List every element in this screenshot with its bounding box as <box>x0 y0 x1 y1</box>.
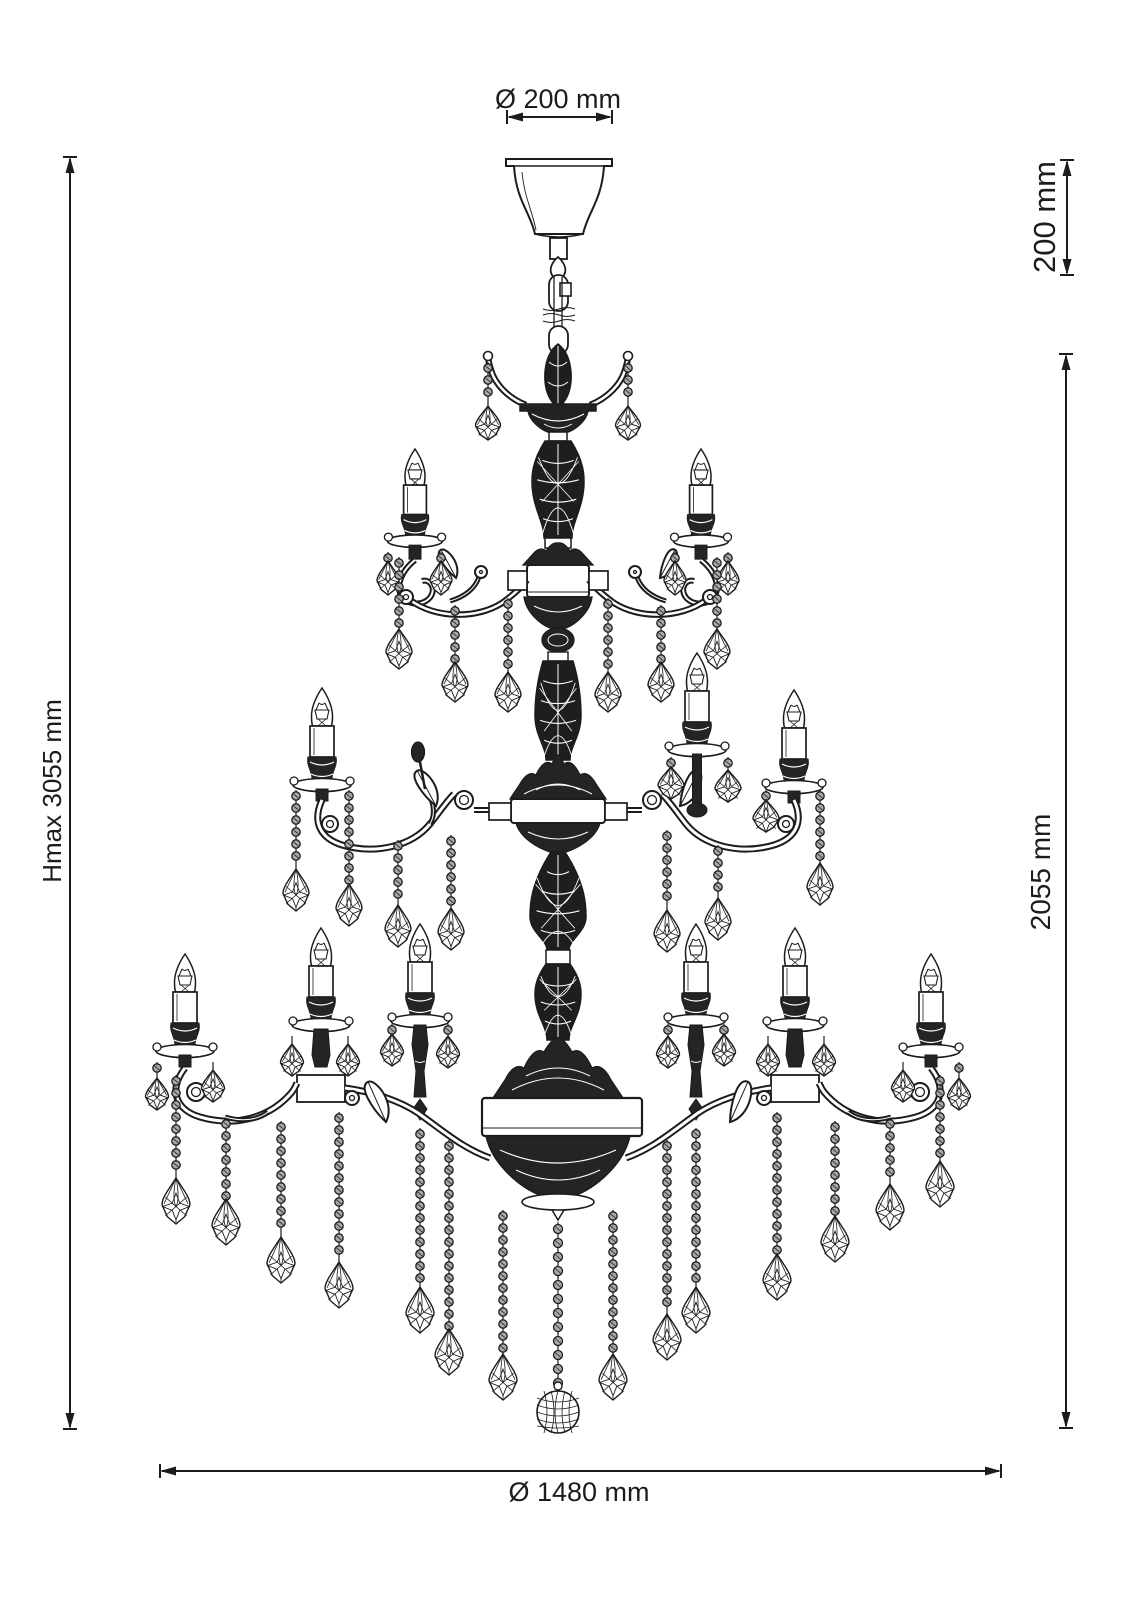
svg-text:Ø 200 mm: Ø 200 mm <box>495 84 621 114</box>
svg-text:Hmax 3055 mm: Hmax 3055 mm <box>37 699 67 883</box>
svg-text:Ø 1480 mm: Ø 1480 mm <box>508 1477 649 1507</box>
svg-text:200 mm: 200 mm <box>1027 161 1062 273</box>
svg-text:2055 mm: 2055 mm <box>1025 814 1056 931</box>
